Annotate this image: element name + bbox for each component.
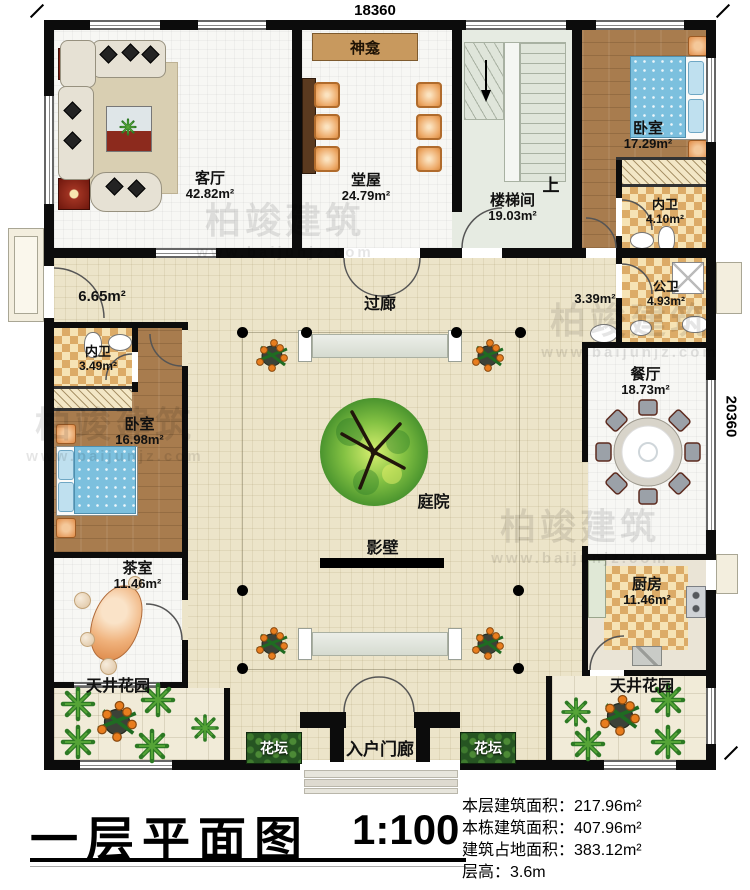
stats-block: 本层建筑面积：217.96m² 本栋建筑面积：407.96m² 建筑占地面积：3… [462, 792, 642, 880]
label-public-bath: 公卫4.93m² [624, 280, 708, 309]
label-bath-tr: 内卫4.10m² [622, 198, 708, 227]
dining-table-set [596, 400, 700, 504]
label-patio-right: 天井花园 [572, 678, 712, 696]
label-screen-wall: 影壁 [345, 540, 420, 558]
label-bath-l: 内卫3.49m² [56, 345, 140, 374]
label-bedroom-tr: 卧室17.29m² [592, 120, 704, 152]
label-wash-area: 3.39m² [560, 292, 630, 307]
title-scale: 1:100 [352, 806, 459, 854]
label-patio-left: 天井花园 [48, 678, 188, 696]
stat-row: 本栋建筑面积：407.96m² [462, 814, 642, 836]
label-stair-up: 上 [536, 176, 566, 196]
label-corridor: 过廊 [340, 296, 420, 314]
label-dining: 餐厅18.73m² [588, 366, 703, 398]
label-hall: 堂屋24.79m² [306, 172, 426, 204]
stat-row: 建筑占地面积：383.12m² [462, 836, 642, 858]
stair-arrow [481, 60, 491, 102]
label-courtyard: 庭院 [396, 494, 471, 512]
label-stairwell: 楼梯间19.03m² [455, 192, 570, 224]
label-porch-left: 6.65m² [62, 288, 142, 305]
title-underline [30, 858, 466, 862]
stat-row: 本层建筑面积：217.96m² [462, 792, 642, 814]
label-living: 客厅42.82m² [150, 170, 270, 202]
label-bedroom-l: 卧室16.98m² [82, 416, 197, 448]
label-entrance: 入户门廊 [310, 740, 450, 760]
floor-plan-canvas: 18360 20360 [0, 0, 750, 890]
title-underline-thin [30, 866, 466, 867]
stat-row: 层高：3.6m [462, 858, 642, 880]
courtyard-tree [320, 398, 428, 506]
label-kitchen: 厨房11.46m² [592, 576, 702, 608]
label-tea-room: 茶室11.46m² [80, 560, 195, 592]
